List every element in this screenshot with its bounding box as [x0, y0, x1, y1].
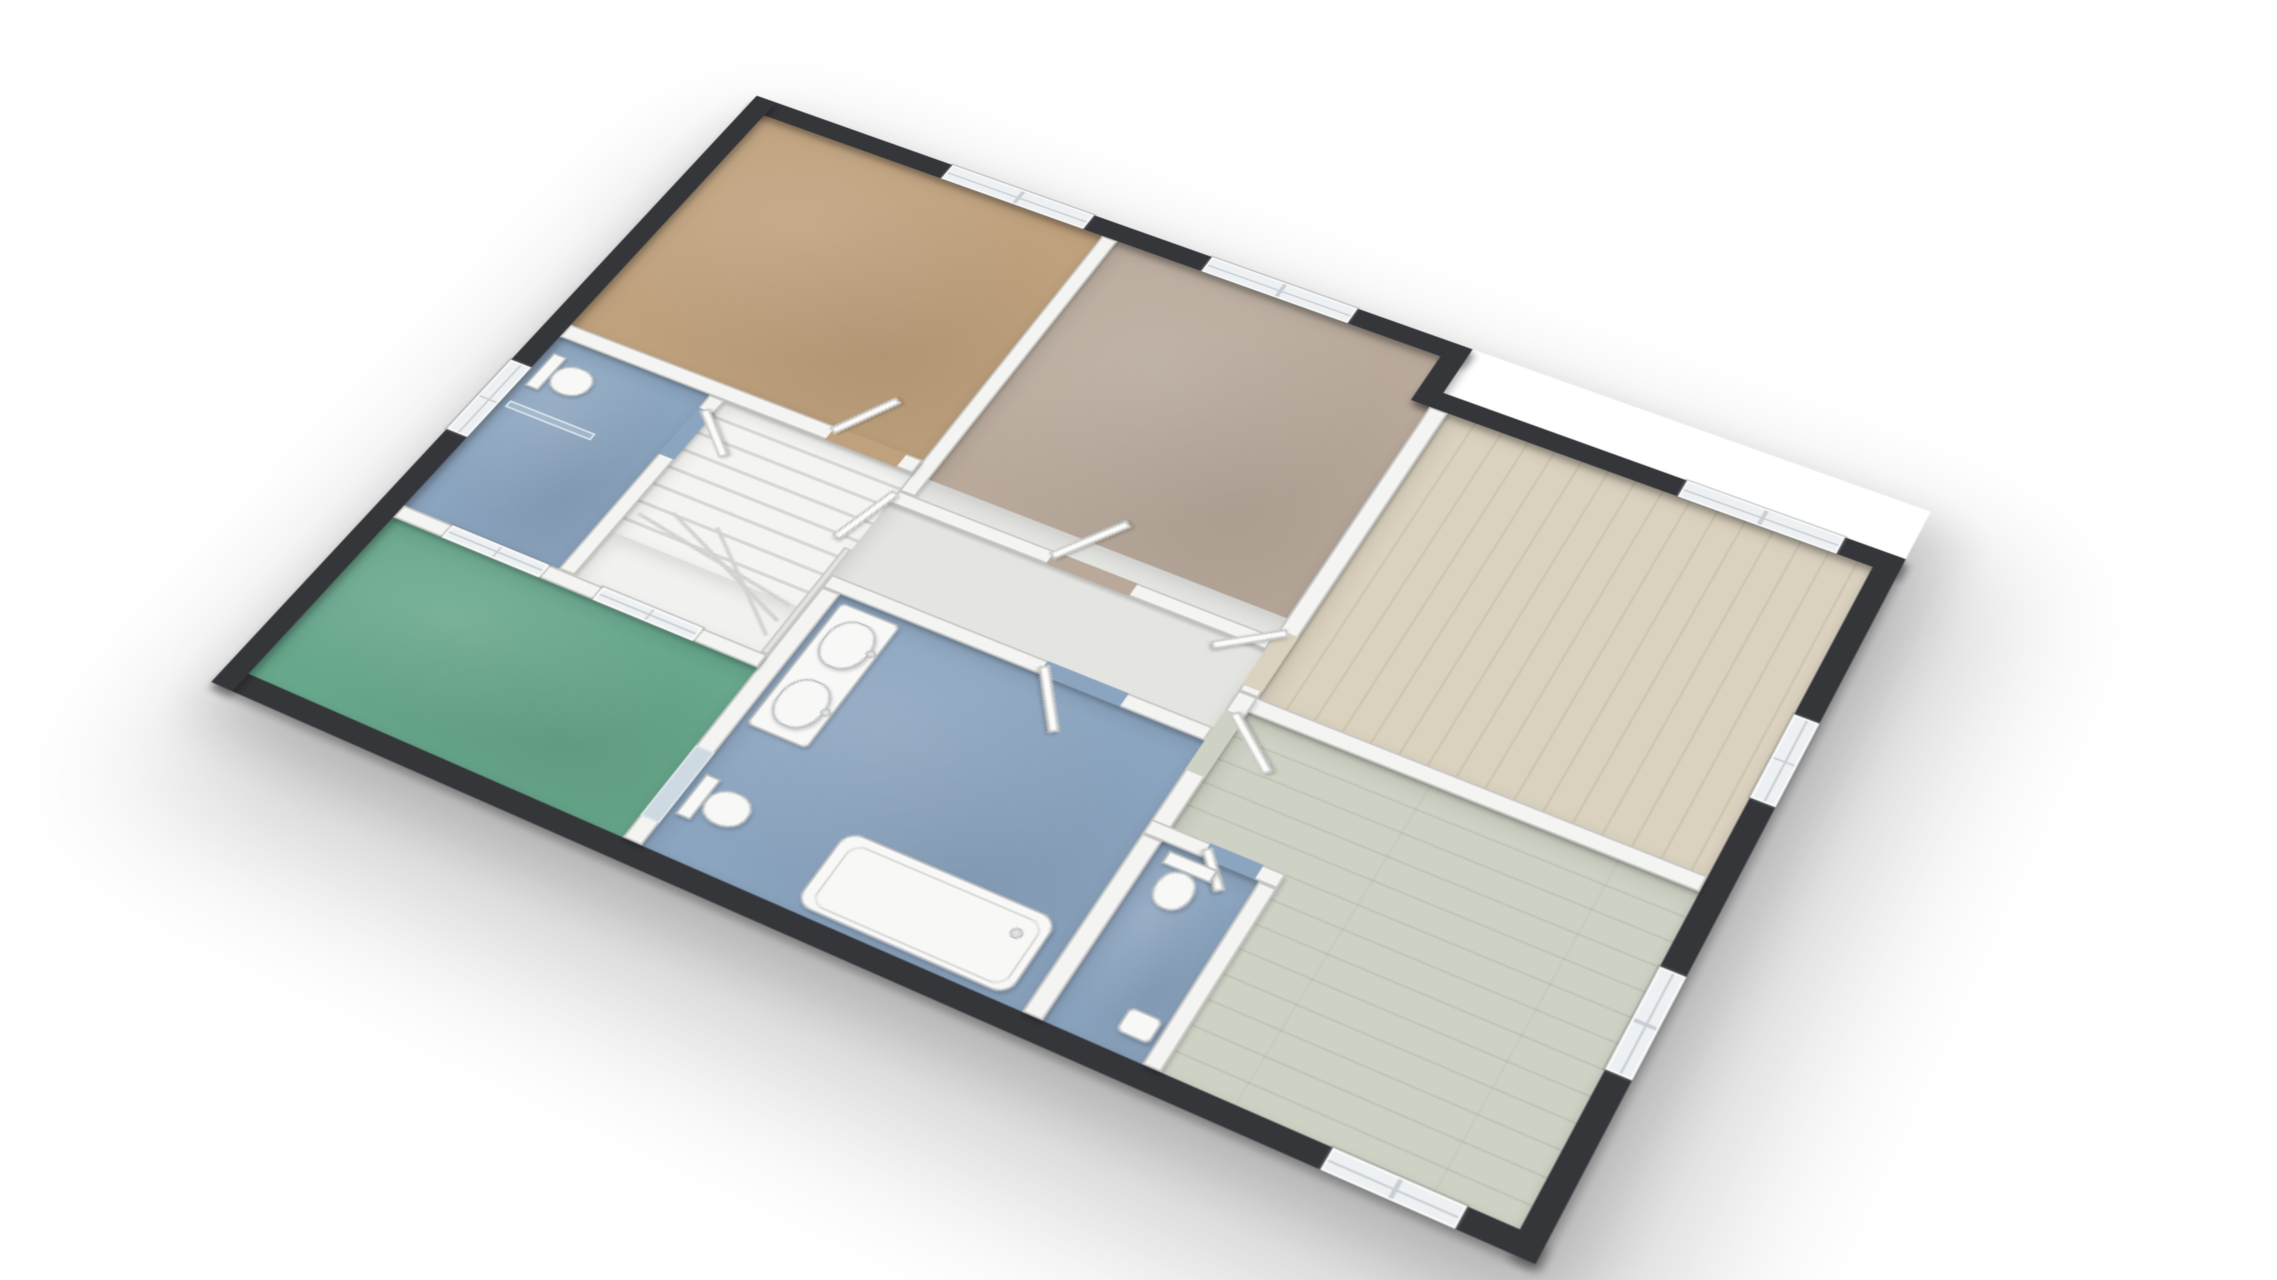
- stage: [0, 0, 2277, 1280]
- floor-plan-3d: [211, 96, 1931, 1265]
